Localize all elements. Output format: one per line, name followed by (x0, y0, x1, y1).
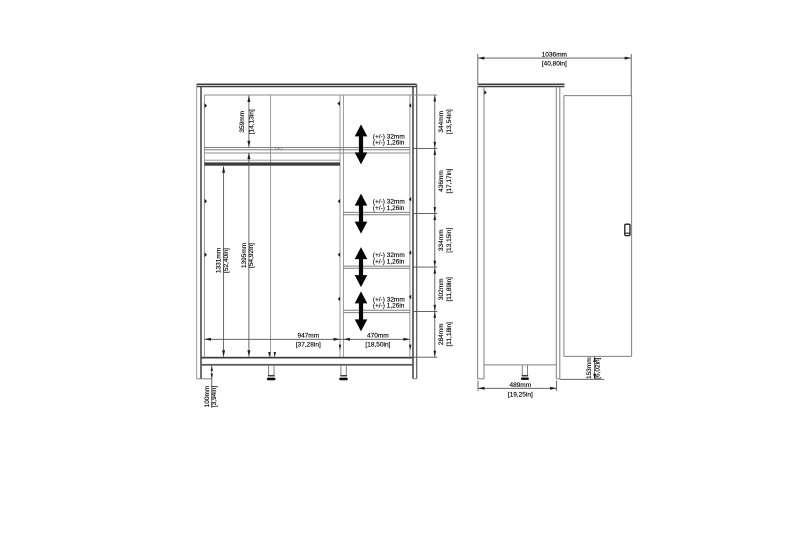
svg-text:344mm: 344mm (438, 111, 445, 133)
svg-text:(+/-) 1,26in: (+/-) 1,26in (373, 140, 405, 147)
svg-text:[37,28in]: [37,28in] (296, 341, 321, 348)
svg-text:[54,92in]: [54,92in] (248, 243, 255, 268)
svg-text:[13,15in]: [13,15in] (446, 228, 453, 253)
svg-text:(+/-) 1,26in: (+/-) 1,26in (373, 205, 405, 212)
svg-text:[13,54in]: [13,54in] (446, 109, 453, 134)
svg-text:1036mm: 1036mm (542, 51, 567, 58)
svg-text:[19,25in]: [19,25in] (508, 391, 533, 398)
svg-text:302mm: 302mm (438, 278, 445, 300)
svg-text:(+/-) 1,26in: (+/-) 1,26in (373, 303, 405, 310)
svg-text:[18,50in]: [18,50in] (365, 341, 390, 348)
svg-text:1395mm: 1395mm (241, 243, 248, 268)
svg-text:[3,94in]: [3,94in] (211, 386, 218, 408)
svg-text:1331mm: 1331mm (216, 248, 223, 273)
svg-text:947mm: 947mm (297, 332, 319, 339)
svg-text:436mm: 436mm (438, 170, 445, 192)
svg-text:[14,13in]: [14,13in] (249, 109, 256, 134)
svg-text:[6,02in]: [6,02in] (595, 357, 602, 379)
svg-text:359mm: 359mm (239, 111, 246, 133)
svg-text:489mm: 489mm (509, 382, 531, 389)
svg-text:284mm: 284mm (438, 323, 445, 345)
svg-text:[52,40in]: [52,40in] (223, 248, 230, 273)
svg-text:[40,80in]: [40,80in] (542, 61, 567, 68)
svg-text:[11,18in]: [11,18in] (446, 322, 453, 347)
svg-text:470mm: 470mm (367, 332, 389, 339)
svg-text:(+/-) 1,26in: (+/-) 1,26in (373, 258, 405, 265)
svg-text:[11,89in]: [11,89in] (446, 277, 453, 302)
svg-text:334mm: 334mm (438, 229, 445, 251)
svg-text:153mm: 153mm (586, 357, 593, 379)
svg-text:[17,17in]: [17,17in] (446, 168, 453, 193)
